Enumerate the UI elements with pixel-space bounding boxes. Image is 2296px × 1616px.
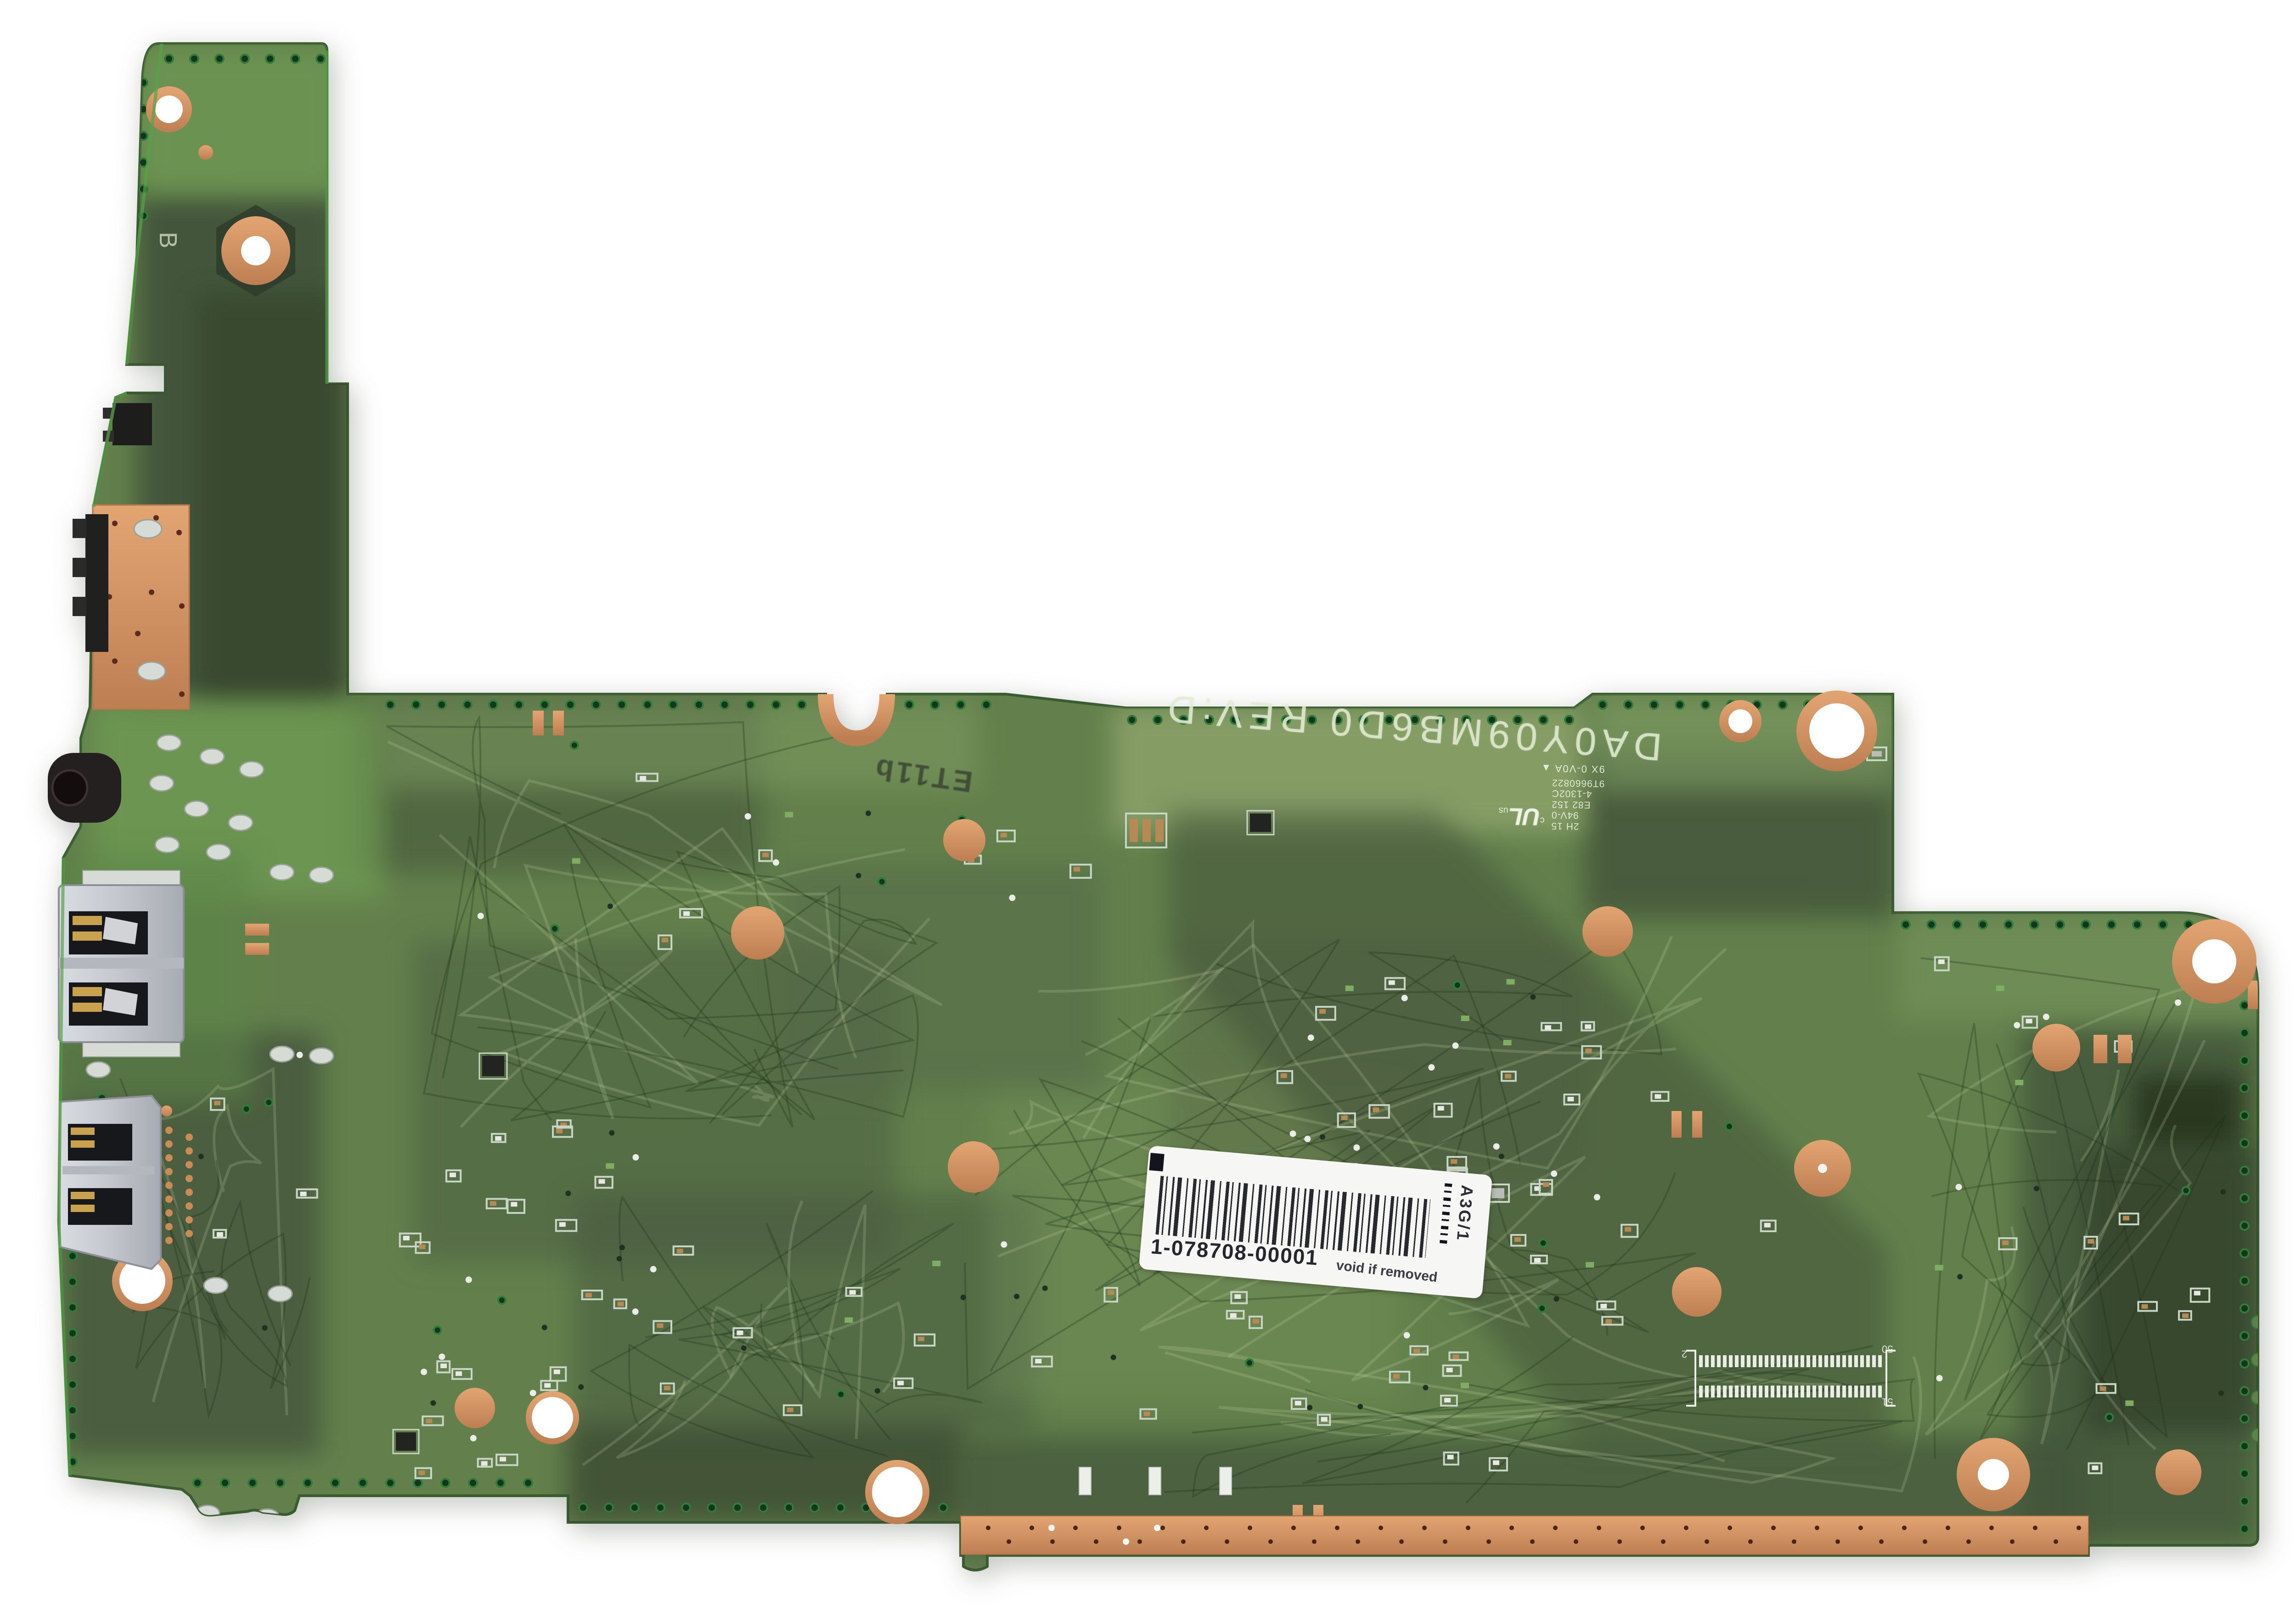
footprint-tick: [1830, 1386, 1834, 1397]
strip-drill: [1597, 1526, 1601, 1530]
drill-dot: [198, 1154, 204, 1159]
smd-body: [662, 938, 668, 943]
via: [2240, 1414, 2249, 1423]
footprint-tick: [1759, 1355, 1762, 1367]
via: [605, 1504, 613, 1512]
footprint-tick: [1711, 1355, 1715, 1367]
solder-pad: [1586, 1262, 1594, 1268]
solder-pad: [844, 1317, 853, 1323]
via: [2105, 1414, 2113, 1421]
strip-hole: [1048, 1525, 1055, 1531]
via: [412, 701, 420, 709]
drill-dot: [608, 903, 613, 909]
solder-pad-oval: [138, 662, 165, 680]
footprint-tick: [1699, 1386, 1703, 1397]
smd-body: [544, 1383, 551, 1388]
via: [836, 1504, 844, 1512]
via: [1927, 920, 1936, 929]
footprint-tick: [1765, 1355, 1768, 1367]
strip-drill: [1705, 1539, 1709, 1544]
solder-pad: [572, 858, 580, 864]
smd-body: [1938, 959, 1945, 964]
footprint-tick: [1872, 1355, 1876, 1367]
copper-bar: [245, 943, 269, 955]
via: [386, 1479, 394, 1487]
strip-drill: [2077, 1526, 2081, 1530]
via: [618, 701, 626, 709]
smd-body: [511, 1202, 517, 1206]
hdmi-pin: [165, 1195, 173, 1203]
smd-body: [1447, 1455, 1454, 1459]
test-point: [1404, 1332, 1410, 1339]
footprint-tick: [1705, 1355, 1709, 1367]
smd-body: [1319, 1009, 1326, 1014]
smd-body: [598, 1179, 605, 1184]
test-point: [632, 1308, 639, 1315]
via: [243, 1105, 250, 1113]
footprint-tick: [1806, 1386, 1810, 1397]
strip-drill: [1204, 1526, 1209, 1530]
via: [68, 1380, 77, 1389]
footprint-tick: [1705, 1386, 1709, 1397]
hdmi-pin: [186, 1147, 193, 1155]
pad-drill: [112, 521, 118, 526]
hdmi-pin: [165, 1182, 173, 1189]
smd-body: [1234, 1294, 1241, 1299]
smd-body: [419, 1245, 425, 1249]
via: [489, 701, 497, 709]
strip-drill: [1902, 1526, 1907, 1530]
via: [498, 1296, 506, 1304]
via: [772, 701, 780, 709]
copper-bar: [2093, 1035, 2107, 1063]
smd-body: [585, 1293, 592, 1297]
via: [2240, 1525, 2249, 1533]
footprint-tick: [1723, 1386, 1727, 1397]
test-point: [1551, 1171, 1557, 1177]
strip-drill: [1225, 1539, 1229, 1544]
test-point: [297, 1052, 303, 1058]
copper-bar: [553, 711, 564, 735]
via: [304, 1479, 312, 1487]
strip-drill: [1312, 1539, 1317, 1544]
via: [579, 1504, 587, 1512]
via: [68, 1355, 77, 1363]
copper-pad-circle: [948, 1141, 999, 1193]
footprint-tick: [1735, 1386, 1739, 1397]
copper-bar: [533, 711, 544, 735]
smd-body: [1321, 1417, 1328, 1422]
via: [669, 701, 677, 709]
board-tone-patch: [2134, 1076, 2240, 1149]
smd-body: [2141, 1304, 2148, 1309]
smd-body: [1295, 1401, 1301, 1405]
strip-drill: [1771, 1526, 1776, 1530]
strip-drill: [1684, 1526, 1688, 1530]
hdmi-pin: [165, 1154, 173, 1161]
test-point: [650, 1266, 657, 1273]
hdmi-pin: [165, 1140, 173, 1148]
footprint-tick: [1818, 1355, 1822, 1367]
board-tone-patch: [197, 294, 344, 698]
via: [2240, 1029, 2249, 1037]
smd-body: [495, 1136, 501, 1141]
strip-drill: [1640, 1526, 1645, 1530]
edge-tab: [2251, 1316, 2264, 1329]
smd-body: [1491, 1188, 1504, 1198]
via: [905, 701, 913, 709]
label-corner-mark: [1149, 1153, 1164, 1171]
drill-dot: [1111, 1355, 1116, 1360]
screw-hole: [155, 95, 183, 123]
strip-drill: [1335, 1526, 1339, 1530]
smd-body: [664, 1386, 670, 1390]
strip-drill: [1466, 1526, 1470, 1530]
solder-pad-oval: [196, 1505, 219, 1521]
footprint-tick: [1765, 1386, 1768, 1397]
hdmi-seam: [62, 1166, 154, 1174]
smd-body: [918, 1337, 924, 1341]
strip-hole: [1154, 1525, 1160, 1531]
ic-chip: [482, 1056, 504, 1076]
footprint-tick: [1741, 1386, 1745, 1397]
via: [1701, 701, 1710, 709]
smd-body: [737, 1330, 743, 1335]
via: [2056, 920, 2064, 929]
footprint-tick: [1872, 1386, 1876, 1397]
edge-tab: [2251, 1391, 2264, 1404]
via: [1953, 920, 1961, 929]
footprint-tick: [1801, 1355, 1804, 1367]
footprint-tick: [1836, 1386, 1840, 1397]
drill-dot: [1553, 1296, 1559, 1302]
via: [592, 701, 600, 709]
copper-pad-circle: [731, 906, 784, 959]
smd-body: [1341, 1116, 1348, 1120]
via: [2240, 1222, 2249, 1230]
solder-pad-oval: [185, 801, 208, 817]
usb-mount-tab: [83, 1042, 180, 1057]
ul-logo-icon: c UL us: [1498, 805, 1545, 828]
solder-pad: [932, 1261, 940, 1266]
via: [2240, 1056, 2249, 1065]
drill-dot: [1957, 1274, 1963, 1279]
footprint-tick: [1717, 1355, 1721, 1367]
solder-pad: [1935, 1265, 1943, 1270]
strip-drill: [1181, 1539, 1186, 1544]
via: [720, 701, 729, 709]
footprint-tick: [1759, 1386, 1762, 1397]
via: [265, 1099, 272, 1106]
smd-body: [559, 1222, 566, 1227]
footprint-tick: [1801, 1386, 1804, 1397]
via: [68, 1252, 77, 1260]
via: [957, 701, 965, 709]
via: [386, 701, 394, 709]
via: [1154, 716, 1162, 724]
strip-drill: [2054, 1539, 2058, 1544]
copper-bar: [1671, 1111, 1682, 1138]
smd-body: [426, 1419, 432, 1423]
via: [2240, 1084, 2249, 1092]
footprint-tick: [1854, 1386, 1858, 1397]
via: [1128, 716, 1136, 724]
footprint-tick: [1848, 1386, 1852, 1397]
via: [515, 701, 523, 709]
drill-dot: [609, 1130, 614, 1136]
strip-drill: [1094, 1539, 1098, 1544]
via: [2182, 1187, 2189, 1194]
via: [2240, 1359, 2249, 1368]
strip-drill: [1617, 1539, 1622, 1544]
footprint-tick: [1795, 1355, 1798, 1367]
screw-hole: [1728, 709, 1752, 733]
solder-pad-oval: [200, 749, 224, 764]
strip-drill: [1574, 1539, 1578, 1544]
strip-drill: [1923, 1539, 1927, 1544]
hdmi-pin: [186, 1133, 193, 1141]
smd-body: [456, 1371, 462, 1376]
drill-dot: [2034, 1186, 2039, 1191]
hdmi-contact: [71, 1192, 95, 1199]
test-point: [1428, 1064, 1435, 1071]
via: [524, 1479, 532, 1487]
footprint-tick: [1747, 1355, 1750, 1367]
footprint-tick: [1789, 1355, 1792, 1367]
smd-body: [1585, 1049, 1592, 1053]
smd-body: [300, 1192, 307, 1196]
drill-dot: [875, 1388, 880, 1394]
copper-pad-circle: [1582, 906, 1633, 957]
test-point: [1353, 1145, 1360, 1151]
screw-hole: [1809, 703, 1864, 758]
footprint-tick: [1836, 1355, 1840, 1367]
footprint-tick: [1783, 1386, 1786, 1397]
test-point: [478, 913, 484, 919]
copper-pad-circle: [2155, 1449, 2201, 1495]
copper-pad-circle: [455, 1388, 495, 1428]
via: [682, 1504, 690, 1512]
pad-drill: [112, 658, 118, 664]
via: [1624, 701, 1632, 709]
smd-body: [217, 1232, 223, 1237]
copper-bar: [2118, 1035, 2132, 1063]
strip-drill: [1728, 1526, 1732, 1530]
smd-body: [1389, 980, 1395, 985]
drill-dot: [1307, 1405, 1312, 1410]
via: [2240, 1442, 2249, 1450]
hdmi-pin: [186, 1189, 193, 1196]
footprint-tick: [1830, 1355, 1834, 1367]
via: [939, 1504, 947, 1512]
smd-body: [2026, 1019, 2032, 1023]
usb-seam: [59, 958, 184, 969]
smd-body: [556, 1129, 563, 1133]
smd-body: [481, 1461, 488, 1466]
via: [441, 1479, 450, 1487]
footprint-tick: [1783, 1355, 1786, 1367]
test-point: [1956, 1184, 1962, 1190]
solder-pad: [2125, 1400, 2133, 1406]
via: [982, 701, 990, 709]
pad-center: [1818, 1164, 1827, 1173]
cert-line: 9T9660822: [1552, 777, 1605, 789]
test-point: [1304, 1136, 1311, 1142]
footprint-tick: [1824, 1355, 1828, 1367]
strip-drill: [1248, 1526, 1252, 1530]
footprint-tick: [1848, 1355, 1852, 1367]
test-point: [1290, 1131, 1296, 1137]
via: [759, 1504, 767, 1512]
test-point: [745, 813, 751, 819]
via: [2030, 920, 2038, 929]
solder-pad-oval: [155, 837, 179, 853]
hdmi-contact: [71, 1140, 95, 1148]
via: [1778, 701, 1787, 709]
smd-body: [1143, 1412, 1150, 1416]
smd-body: [1444, 1398, 1451, 1403]
smd-body: [214, 1101, 220, 1105]
drill-dot: [1357, 1404, 1363, 1409]
test-point: [1401, 995, 1408, 1001]
smd-body: [2088, 1239, 2094, 1244]
strip-drill: [1879, 1539, 1884, 1544]
copper-pad-circle: [943, 819, 985, 861]
test-point: [466, 1277, 472, 1283]
power-connector: [85, 514, 108, 652]
via: [193, 1479, 202, 1487]
smd-body: [403, 1236, 410, 1240]
smd-body: [1625, 1227, 1631, 1232]
via: [215, 55, 224, 63]
cert-line: E82 152: [1551, 799, 1591, 810]
via: [68, 1303, 77, 1312]
footprint-tick: [1771, 1355, 1774, 1367]
smd-body: [1253, 1319, 1259, 1324]
usb-contact: [73, 987, 102, 996]
via: [241, 55, 249, 63]
copper-bar: [245, 924, 269, 936]
edge-copper-strip: [961, 1516, 2088, 1554]
via: [359, 1479, 367, 1487]
copper-pad-circle: [2032, 1024, 2080, 1072]
via: [1676, 701, 1684, 709]
via: [656, 1504, 664, 1512]
smd-body: [1585, 1024, 1591, 1029]
drill-dot: [856, 873, 861, 878]
footprint-tick: [1812, 1355, 1816, 1367]
strip-hole: [1123, 1538, 1129, 1545]
via: [540, 701, 549, 709]
connector-tooth: [73, 597, 86, 616]
via: [746, 701, 754, 709]
pad-drill: [179, 603, 185, 609]
solder-pad-oval: [240, 762, 264, 777]
cert-bottom-line: 9X 0-V0A ▲: [1483, 761, 1605, 775]
drill-dot: [1320, 1134, 1325, 1139]
via: [2107, 920, 2116, 929]
pad-drill: [153, 515, 159, 521]
via: [68, 1278, 77, 1286]
test-point: [1001, 1241, 1007, 1248]
via: [221, 1479, 229, 1487]
via: [1454, 982, 1461, 989]
via: [1246, 1359, 1253, 1367]
via: [708, 1504, 716, 1512]
via: [785, 1504, 793, 1512]
drill-dot: [866, 810, 871, 816]
pad-drill: [135, 631, 141, 636]
via: [643, 701, 652, 709]
smd-body: [1600, 1304, 1607, 1308]
test-point: [2043, 1014, 2049, 1020]
strip-drill: [1422, 1526, 1427, 1530]
via: [469, 1479, 477, 1487]
via: [1598, 701, 1607, 709]
smd-body: [2100, 1386, 2106, 1391]
cert-line: 94V-0: [1551, 809, 1579, 821]
hdmi-contact: [71, 1128, 95, 1135]
test-point: [773, 859, 779, 866]
connector-tooth: [73, 519, 86, 538]
drill-dot: [617, 1256, 622, 1262]
strip-drill: [1379, 1526, 1383, 1530]
via: [551, 925, 558, 932]
screw-hole: [1978, 1459, 2009, 1490]
footprint-tick: [1735, 1355, 1739, 1367]
via: [2240, 1277, 2249, 1285]
solder-pad-oval: [204, 1278, 228, 1293]
hdmi-pin: [186, 1230, 193, 1237]
footprint-tick: [1753, 1386, 1756, 1397]
strip-drill: [1160, 1526, 1165, 1530]
via: [1902, 920, 1910, 929]
smd-body: [1514, 1237, 1521, 1242]
test-point: [2014, 1022, 2020, 1028]
via: [878, 878, 886, 886]
strip-drill: [1946, 1526, 1950, 1530]
solder-pad-oval: [150, 775, 174, 791]
via: [571, 741, 578, 749]
solder-pad: [1461, 1016, 1469, 1021]
strip-drill: [1137, 1539, 1142, 1544]
via: [68, 1329, 77, 1337]
footprint-tick: [1729, 1355, 1733, 1367]
smd-body: [850, 1290, 856, 1295]
label-side-code: A3G/1: [1453, 1184, 1477, 1243]
via: [566, 701, 574, 709]
via: [2004, 920, 2013, 929]
smd-body: [1493, 1460, 1499, 1465]
strip-drill: [1291, 1526, 1296, 1530]
footprint-tick: [1860, 1386, 1864, 1397]
smd-body: [490, 1201, 496, 1206]
screw-hole: [2192, 939, 2236, 983]
via: [68, 1406, 77, 1414]
smd-body: [897, 1381, 904, 1386]
via: [2240, 1497, 2249, 1505]
drill-dot: [262, 1325, 268, 1330]
smd-body: [2002, 1240, 2009, 1245]
footprint-tick: [1806, 1355, 1810, 1367]
footprint-tick: [1854, 1355, 1858, 1367]
drill-dot: [961, 1295, 966, 1300]
ul-certification-block: 2H 15 94V-0 E82 152 4-1302C 9T9660822 c …: [1482, 753, 1605, 832]
via: [630, 1504, 639, 1512]
edge-tab: [2251, 1429, 2264, 1442]
smd-body: [500, 1457, 506, 1461]
solder-pad: [1461, 1383, 1469, 1388]
